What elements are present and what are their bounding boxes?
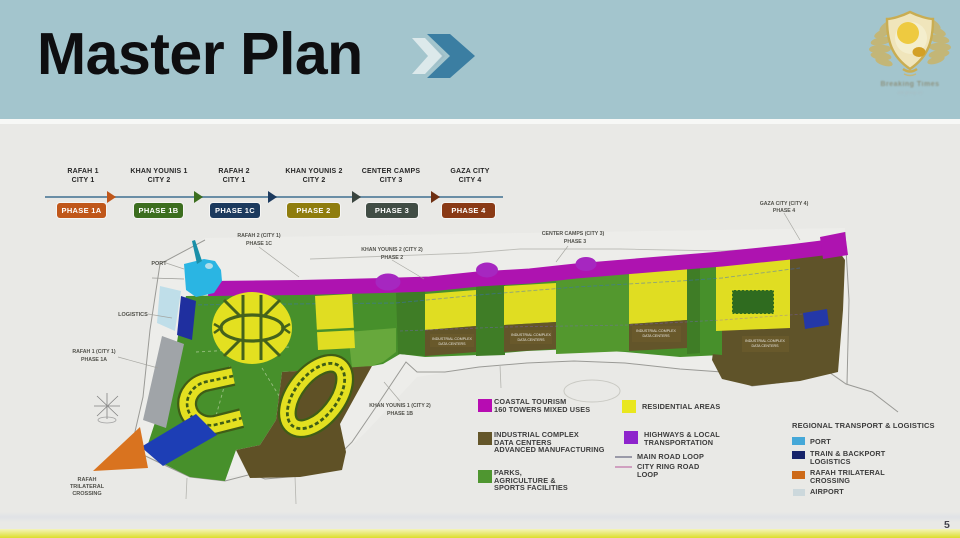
svg-text:PHASE 3: PHASE 3 [564, 239, 586, 245]
svg-text:RAFAH 2 (CITY 1): RAFAH 2 (CITY 1) [237, 233, 280, 239]
svg-text:PHASE 2: PHASE 2 [381, 255, 403, 261]
svg-text:CENTER CAMPS (CITY 3): CENTER CAMPS (CITY 3) [542, 231, 605, 237]
svg-text:KHAN YOUNIS 1 (CITY 2): KHAN YOUNIS 1 (CITY 2) [369, 403, 431, 409]
svg-text:DATA CENTERS: DATA CENTERS [517, 338, 545, 342]
svg-text:INDUSTRIAL COMPLEX: INDUSTRIAL COMPLEX [511, 333, 551, 337]
svg-text:LOGISTICS: LOGISTICS [118, 312, 148, 318]
svg-text:TRILATERAL: TRILATERAL [70, 484, 105, 490]
svg-text:DATA CENTERS: DATA CENTERS [642, 334, 670, 338]
svg-text:GAZA CITY (CITY 4): GAZA CITY (CITY 4) [760, 201, 809, 207]
svg-text:DATA CENTERS: DATA CENTERS [751, 344, 779, 348]
svg-text:PORT: PORT [151, 261, 167, 267]
svg-text:PHASE 4: PHASE 4 [773, 208, 795, 214]
svg-text:INDUSTRIAL COMPLEX: INDUSTRIAL COMPLEX [432, 337, 472, 341]
svg-text:PHASE 1A: PHASE 1A [81, 357, 107, 363]
svg-text:PHASE 1C: PHASE 1C [246, 241, 272, 247]
svg-text:DATA CENTERS: DATA CENTERS [438, 342, 466, 346]
svg-text:PHASE 1B: PHASE 1B [387, 411, 413, 417]
svg-text:INDUSTRIAL COMPLEX: INDUSTRIAL COMPLEX [745, 339, 785, 343]
svg-text:RAFAH: RAFAH [78, 477, 97, 483]
svg-text:KHAN YOUNIS 2 (CITY 2): KHAN YOUNIS 2 (CITY 2) [361, 247, 423, 253]
svg-text:RAFAH 1 (CITY 1): RAFAH 1 (CITY 1) [72, 349, 115, 355]
svg-text:INDUSTRIAL COMPLEX: INDUSTRIAL COMPLEX [636, 329, 676, 333]
svg-text:CROSSING: CROSSING [72, 491, 101, 497]
